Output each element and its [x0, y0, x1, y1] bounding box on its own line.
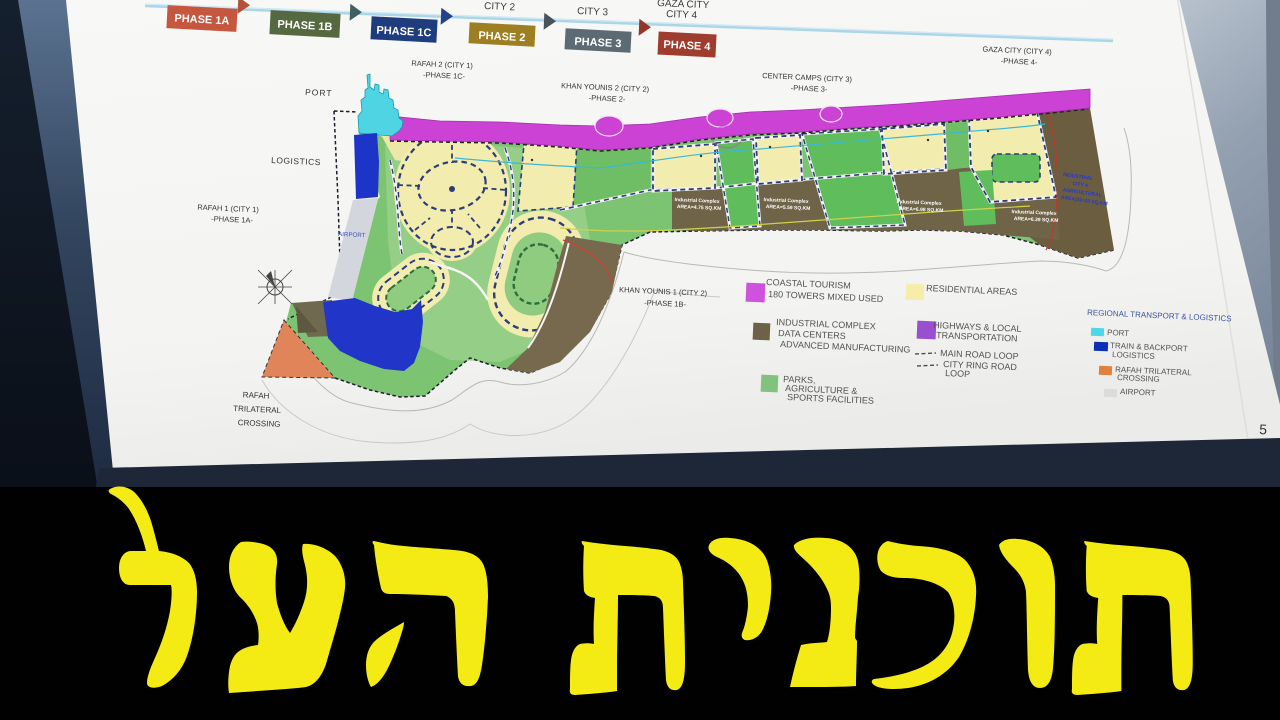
- svg-text:PHASE 3: PHASE 3: [574, 36, 622, 50]
- svg-text:RAFAH: RAFAH: [243, 390, 270, 400]
- svg-text:CITY 3: CITY 3: [577, 6, 609, 18]
- svg-text:LOOP: LOOP: [945, 368, 970, 379]
- svg-text:CITY 4: CITY 4: [666, 9, 698, 21]
- svg-text:CITY 2: CITY 2: [484, 1, 516, 13]
- svg-text:PORT: PORT: [305, 87, 333, 98]
- svg-text:PHASE 4: PHASE 4: [663, 39, 712, 53]
- svg-text:5: 5: [1259, 421, 1268, 437]
- svg-text:PHASE 2: PHASE 2: [478, 30, 526, 44]
- svg-text:-PHASE 1A-: -PHASE 1A-: [211, 214, 254, 225]
- svg-text:AIRPORT: AIRPORT: [1120, 387, 1156, 398]
- svg-text:CROSSING: CROSSING: [238, 418, 281, 429]
- svg-text:-PHASE 1B-: -PHASE 1B-: [644, 298, 687, 309]
- svg-text:PORT: PORT: [1107, 328, 1130, 338]
- svg-text:-PHASE 3-: -PHASE 3-: [791, 83, 829, 94]
- svg-text:-PHASE 1C-: -PHASE 1C-: [423, 70, 466, 81]
- svg-text:AIRPORT: AIRPORT: [338, 231, 366, 239]
- svg-text:-PHASE 4-: -PHASE 4-: [1001, 56, 1039, 67]
- svg-text:-PHASE 2-: -PHASE 2-: [589, 93, 627, 104]
- svg-text:CROSSING: CROSSING: [1117, 373, 1160, 384]
- svg-text:LOGISTICS: LOGISTICS: [1112, 350, 1155, 361]
